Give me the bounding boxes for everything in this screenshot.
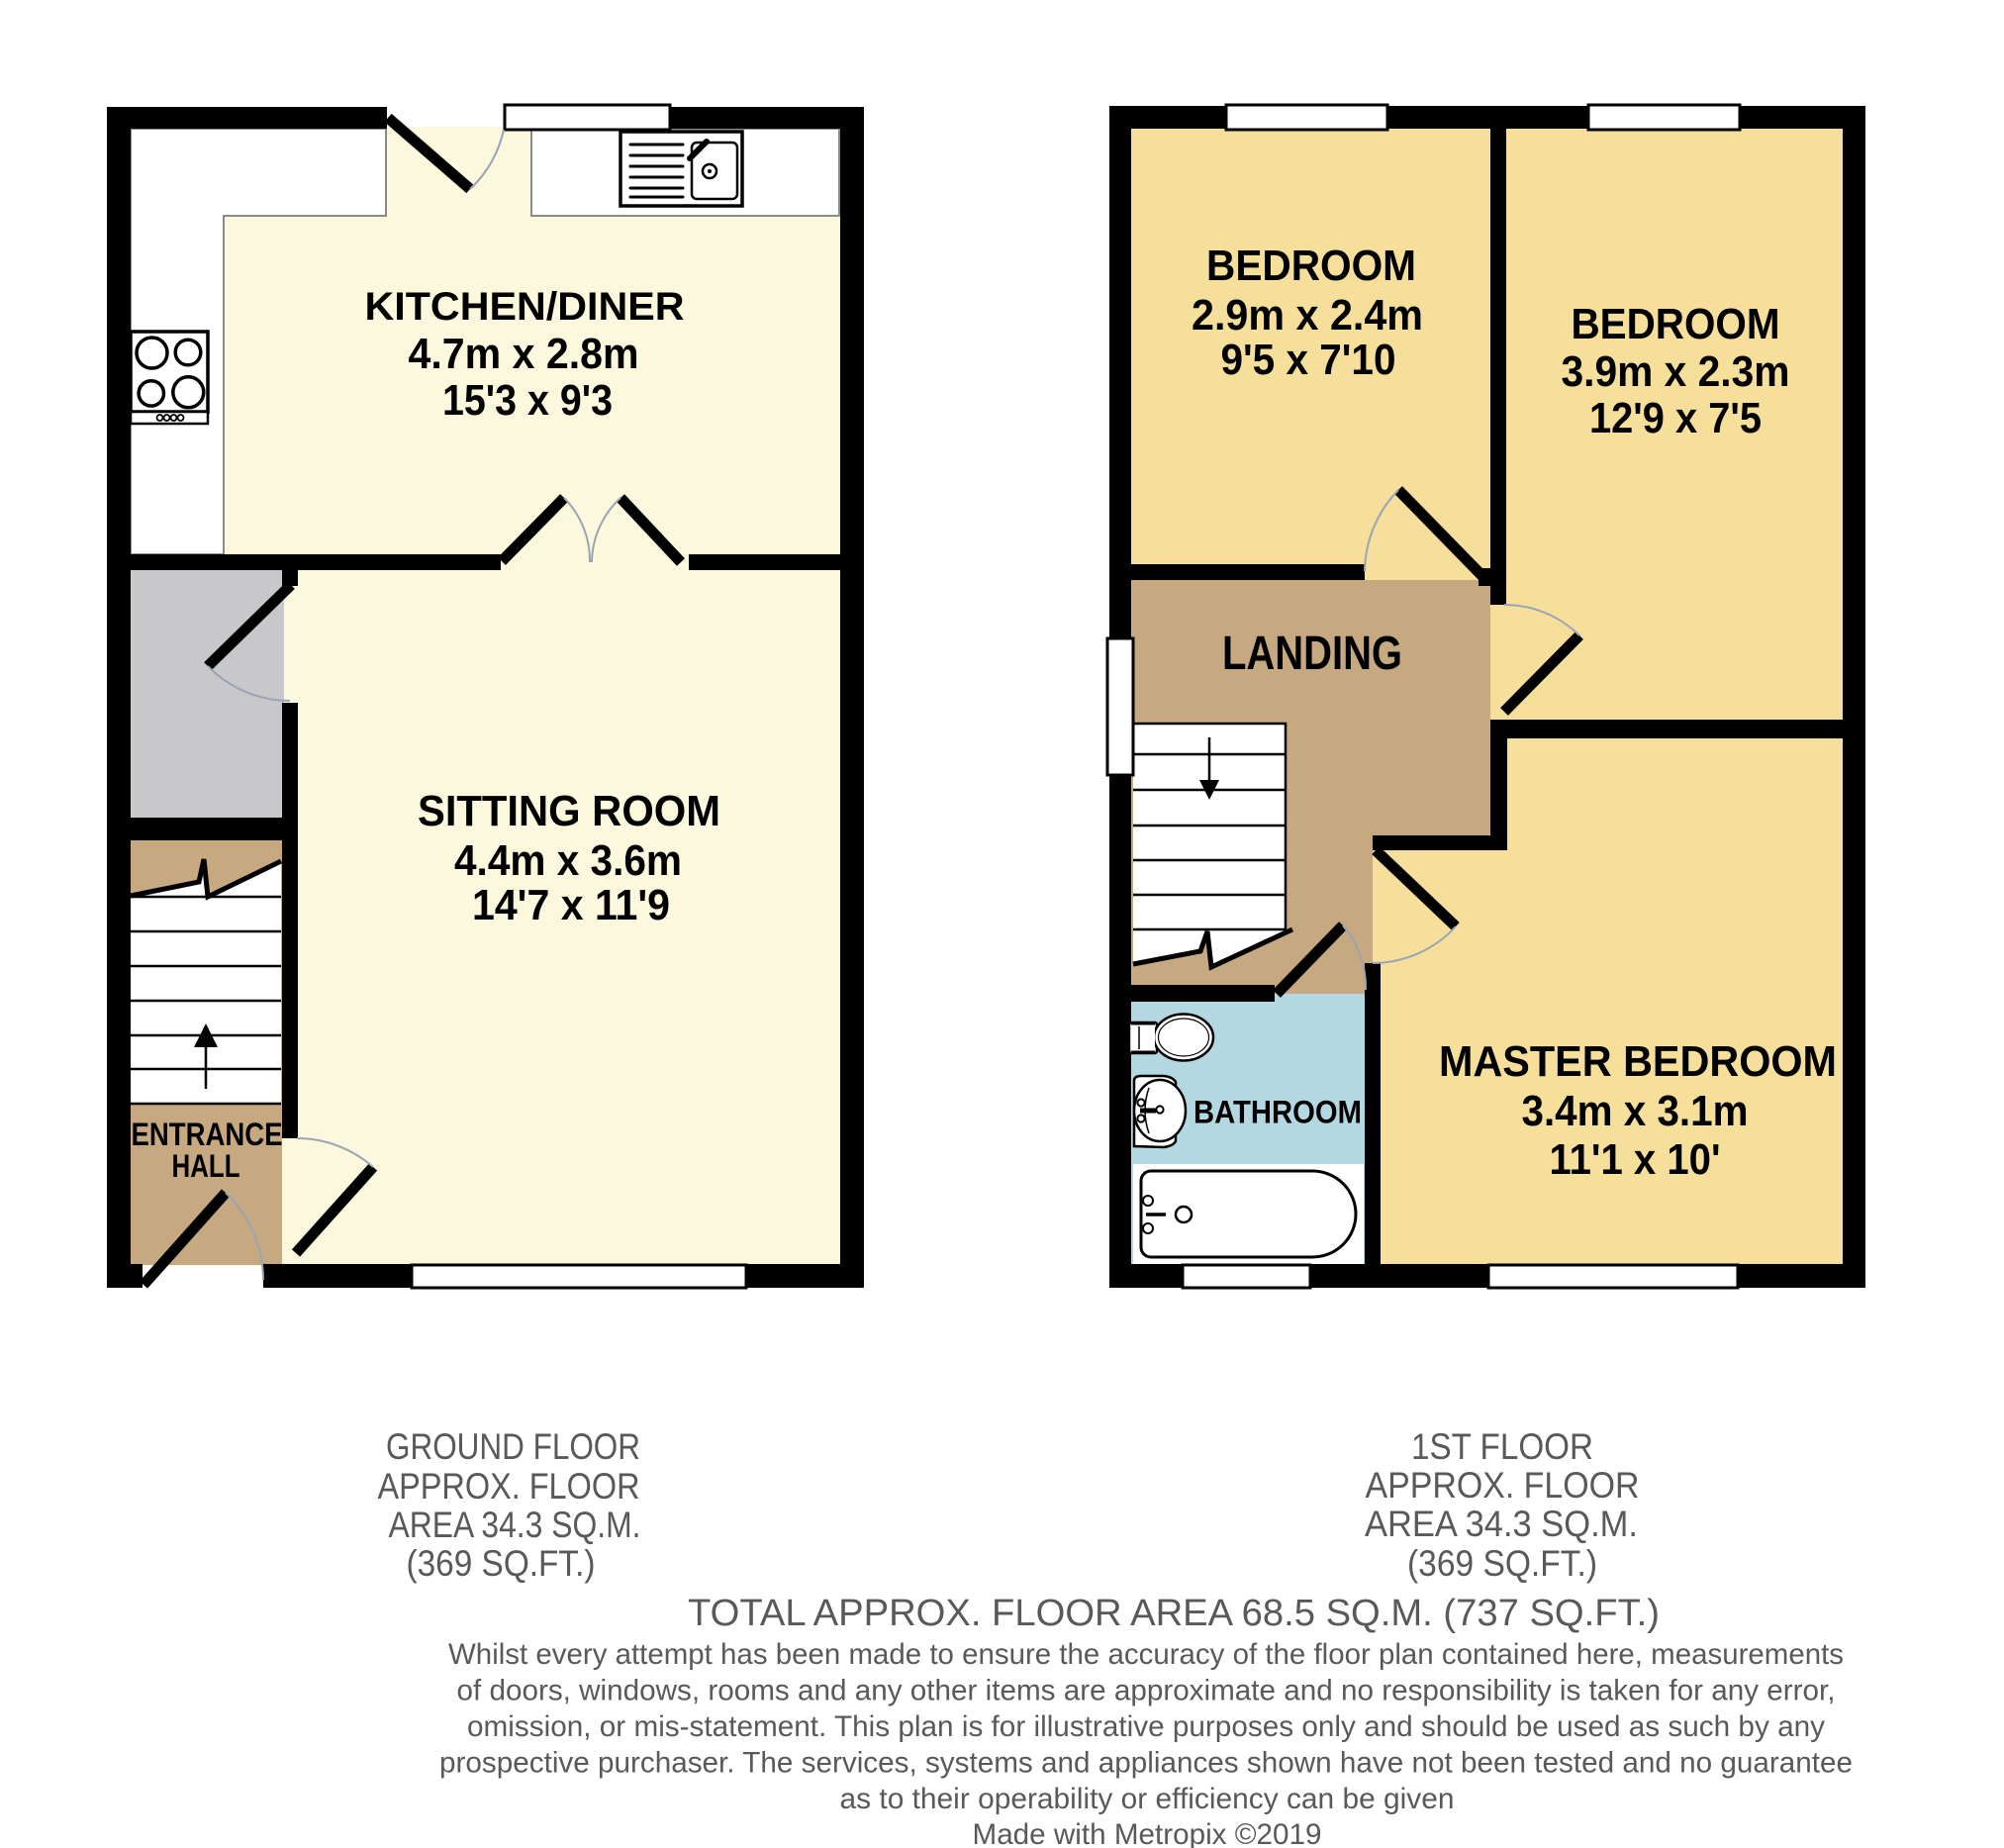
svg-text:GROUND FLOOR: GROUND FLOOR [386,1425,640,1467]
svg-text:BEDROOM: BEDROOM [1206,242,1416,290]
svg-text:omission, or mis-statement. Th: omission, or mis-statement. This plan is… [467,1710,1825,1743]
svg-text:prospective purchaser. The ser: prospective purchaser. The services, sys… [439,1747,1853,1780]
svg-text:LANDING: LANDING [1222,628,1402,680]
svg-text:HALL: HALL [172,1148,240,1184]
svg-text:TOTAL APPROX. FLOOR AREA 68.5: TOTAL APPROX. FLOOR AREA 68.5 SQ.M. (737… [688,1592,1660,1633]
svg-text:ENTRANCE: ENTRANCE [132,1117,283,1152]
svg-text:MASTER BEDROOM: MASTER BEDROOM [1439,1037,1837,1086]
svg-text:Whilst every attempt has been: Whilst every attempt has been made to en… [448,1638,1844,1671]
svg-text:15'3 x 9'3: 15'3 x 9'3 [442,376,613,425]
svg-text:4.7m x 2.8m: 4.7m x 2.8m [409,330,639,378]
svg-text:of doors, windows, rooms and a: of doors, windows, rooms and any other i… [457,1675,1836,1707]
svg-text:BEDROOM: BEDROOM [1572,300,1780,348]
svg-text:12'9 x 7'5: 12'9 x 7'5 [1589,394,1762,442]
svg-text:SITTING ROOM: SITTING ROOM [418,787,720,835]
svg-text:9'5 x 7'10: 9'5 x 7'10 [1221,336,1396,384]
svg-text:APPROX. FLOOR: APPROX. FLOOR [378,1465,640,1507]
svg-text:11'1 x 10': 11'1 x 10' [1550,1135,1721,1184]
svg-text:Made with Metropix ©2019: Made with Metropix ©2019 [973,1818,1322,1848]
svg-text:3.9m x 2.3m: 3.9m x 2.3m [1562,347,1790,396]
svg-text:as to their operability or eff: as to their operability or efficiency ca… [840,1783,1455,1815]
svg-text:BATHROOM: BATHROOM [1193,1095,1362,1130]
svg-text:3.4m x 3.1m: 3.4m x 3.1m [1522,1087,1749,1135]
svg-text:2.9m x 2.4m: 2.9m x 2.4m [1192,291,1423,340]
svg-text:AREA 34.3 SQ.M.: AREA 34.3 SQ.M. [389,1504,641,1545]
svg-text:APPROX. FLOOR: APPROX. FLOOR [1366,1464,1640,1506]
svg-text:4.4m x 3.6m: 4.4m x 3.6m [454,836,682,885]
svg-text:(369 SQ.FT.): (369 SQ.FT.) [1407,1542,1597,1584]
svg-text:(369 SQ.FT.): (369 SQ.FT.) [407,1542,596,1584]
svg-text:AREA 34.3 SQ.M.: AREA 34.3 SQ.M. [1365,1503,1638,1544]
svg-text:KITCHEN/DINER: KITCHEN/DINER [365,285,685,329]
svg-text:14'7 x 11'9: 14'7 x 11'9 [472,881,670,929]
svg-text:1ST FLOOR: 1ST FLOOR [1411,1425,1593,1467]
